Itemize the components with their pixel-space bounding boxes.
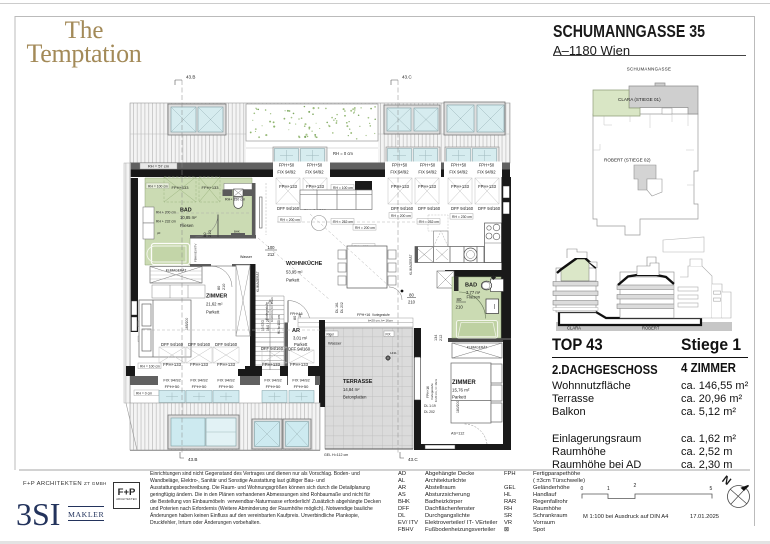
svg-text:43.C: 43.C <box>402 75 412 80</box>
svg-text:RH = 200 cm: RH = 200 cm <box>355 226 375 230</box>
svg-text:DFF 94/160: DFF 94/160 <box>478 206 501 211</box>
svg-text:DFF 94/160: DFF 94/160 <box>215 342 238 347</box>
svg-text:RH + 232 cm: RH + 232 cm <box>156 220 176 224</box>
svg-text:RH = 230 cm: RH = 230 cm <box>452 215 472 219</box>
svg-text:FPH+133: FPH+133 <box>201 185 219 190</box>
svg-text:FIX 94/92: FIX 94/92 <box>449 170 468 175</box>
svg-text:2: 2 <box>634 483 637 489</box>
svg-text:FIX 94/92: FIX 94/92 <box>277 170 296 175</box>
svg-text:FPH+133: FPH+133 <box>262 362 280 367</box>
svg-text:GEL H=112 cm: GEL H=112 cm <box>324 453 348 457</box>
svg-text:DFF 94/160: DFF 94/160 <box>277 206 300 211</box>
svg-text:RH = 200 cm: RH = 200 cm <box>391 214 411 218</box>
svg-text:RH = 0 cm: RH = 0 cm <box>136 392 152 396</box>
svg-text:Vorlegestufe: Vorlegestufe <box>265 302 269 320</box>
svg-text:Parkett: Parkett <box>206 310 220 315</box>
svg-text:0: 0 <box>581 486 584 492</box>
svg-text:AR: AR <box>292 328 300 334</box>
svg-text:b=20 cm, h= 16cm: b=20 cm, h= 16cm <box>368 319 393 323</box>
svg-text:Vorlegestufe: Vorlegestufe <box>372 313 390 317</box>
svg-text:DL 202: DL 202 <box>340 302 344 313</box>
svg-text:1431: 1431 <box>390 351 397 355</box>
svg-text:N: N <box>719 474 733 488</box>
svg-text:FBHV/EV/ITV: FBHV/EV/ITV <box>194 244 198 262</box>
svg-text:RH+ 350 cm: RH+ 350 cm <box>225 197 245 201</box>
svg-text:DL 161: DL 161 <box>335 302 339 313</box>
svg-text:ZIMMER: ZIMMER <box>452 380 476 386</box>
svg-text:p0: p0 <box>157 231 161 235</box>
svg-text:FIX: FIX <box>386 333 392 337</box>
svg-text:RH = 100 cm: RH = 100 cm <box>333 186 353 190</box>
svg-text:ROBERT (STIEGE 02): ROBERT (STIEGE 02) <box>604 158 651 163</box>
svg-text:210: 210 <box>207 230 212 237</box>
svg-text:FPH+50: FPH+50 <box>165 384 181 389</box>
svg-text:FPH+133: FPH+133 <box>391 184 409 189</box>
svg-text:1: 1 <box>607 486 610 492</box>
svg-text:RH = 100 cm: RH = 100 cm <box>148 185 168 189</box>
svg-text:14,84 m²: 14,84 m² <box>343 387 360 392</box>
svg-text:43.B: 43.B <box>188 457 197 462</box>
svg-text:FPH+50: FPH+50 <box>266 384 282 389</box>
svg-text:53,95 m²: 53,95 m² <box>286 270 303 275</box>
svg-text:FIX 94/92: FIX 94/92 <box>477 170 496 175</box>
svg-text:FIX 94/92: FIX 94/92 <box>390 170 409 175</box>
svg-text:FPH+133: FPH+133 <box>478 184 496 189</box>
svg-text:WOHNKÜCHE: WOHNKÜCHE <box>286 260 323 267</box>
svg-text:BAD: BAD <box>465 283 477 289</box>
svg-text:210: 210 <box>456 305 464 310</box>
svg-text:FPH+133: FPH+133 <box>171 185 189 190</box>
svg-text:KLIMAGERÄT: KLIMAGERÄT <box>256 271 260 292</box>
svg-text:b=20 cm, h= 16cm: b=20 cm, h= 16cm <box>434 378 438 402</box>
svg-text:134: 134 <box>434 335 438 341</box>
svg-text:FPH+50: FPH+50 <box>192 384 208 389</box>
svg-text:212: 212 <box>268 252 276 257</box>
svg-text:FIX 94/92: FIX 94/92 <box>264 378 282 383</box>
svg-text:3,01 m²: 3,01 m² <box>293 336 308 341</box>
svg-text:Parkett: Parkett <box>452 395 467 400</box>
svg-text:FPH+16: FPH+16 <box>290 312 303 316</box>
svg-text:FIX 94/92: FIX 94/92 <box>190 378 208 383</box>
svg-text:SCHUMANNGASSE: SCHUMANNGASSE <box>627 67 671 72</box>
svg-text:DFF 94/160: DFF 94/160 <box>451 206 474 211</box>
svg-text:FPH+133: FPH+133 <box>279 184 297 189</box>
svg-text:RH = 100 cm: RH = 100 cm <box>140 365 160 369</box>
svg-text:FIX 94/92: FIX 94/92 <box>418 170 437 175</box>
svg-text:FIX 94/92: FIX 94/92 <box>217 378 235 383</box>
svg-text:Wasser: Wasser <box>240 255 253 259</box>
svg-text:15,76 m²: 15,76 m² <box>452 388 470 393</box>
svg-text:FPH+50: FPH+50 <box>479 163 495 168</box>
svg-text:CLARA (STIEGE 01): CLARA (STIEGE 01) <box>618 97 661 102</box>
svg-text:Fliesen: Fliesen <box>467 295 481 300</box>
svg-text:AS=112: AS=112 <box>451 432 464 436</box>
svg-text:FIX 94/92: FIX 94/92 <box>163 378 181 383</box>
svg-text:210: 210 <box>222 284 226 290</box>
svg-text:FPH+50: FPH+50 <box>420 163 436 168</box>
svg-text:FPH+16: FPH+16 <box>357 313 370 317</box>
svg-text:RH + 200 cm: RH + 200 cm <box>156 211 176 215</box>
svg-text:FPH+50: FPH+50 <box>294 384 310 389</box>
svg-text:Betonplatten: Betonplatten <box>343 395 367 400</box>
svg-text:ZIMMER: ZIMMER <box>206 294 227 300</box>
svg-text:DFF 94/160: DFF 94/160 <box>288 347 311 352</box>
svg-text:FPH+50: FPH+50 <box>219 384 235 389</box>
svg-text:43.C: 43.C <box>408 457 418 462</box>
svg-text:FPH+133: FPH+133 <box>451 184 469 189</box>
svg-text:ROBERT: ROBERT <box>642 326 660 331</box>
svg-text:Rigel: Rigel <box>327 333 335 337</box>
svg-text:KLIMAGERÄT: KLIMAGERÄT <box>409 254 413 275</box>
svg-text:FPH+50: FPH+50 <box>279 163 295 168</box>
svg-text:180/200: 180/200 <box>456 401 460 413</box>
svg-text:212: 212 <box>439 335 443 341</box>
svg-text:FIX 94/92: FIX 94/92 <box>292 378 310 383</box>
svg-text:DFF 94/160: DFF 94/160 <box>261 346 284 351</box>
svg-text:FPH+50: FPH+50 <box>392 163 408 168</box>
svg-text:FPH+133: FPH+133 <box>290 362 308 367</box>
svg-text:Parkett: Parkett <box>286 278 300 283</box>
svg-text:10,85 m²: 10,85 m² <box>180 215 197 220</box>
svg-text:Wasser: Wasser <box>328 341 342 346</box>
svg-text:80: 80 <box>293 316 297 320</box>
svg-text:CLARA: CLARA <box>567 326 581 331</box>
svg-text:FPH+133: FPH+133 <box>217 362 235 367</box>
svg-text:FIX 94/92: FIX 94/92 <box>305 170 324 175</box>
svg-text:DL 1:19: DL 1:19 <box>424 404 436 408</box>
svg-text:FPH+50: FPH+50 <box>451 163 467 168</box>
svg-text:KLIMAGERÄT: KLIMAGERÄT <box>166 269 187 273</box>
svg-text:RH = 57 cm: RH = 57 cm <box>148 164 170 169</box>
svg-text:210: 210 <box>408 300 416 305</box>
svg-text:13 STG: 13 STG <box>261 319 265 331</box>
svg-text:165/200: 165/200 <box>185 318 189 330</box>
svg-text:b=20 cm, h= 16cm: b=20 cm, h= 16cm <box>270 297 274 322</box>
svg-text:21,62 m²: 21,62 m² <box>206 302 223 307</box>
svg-text:TERRASSE: TERRASSE <box>343 379 373 385</box>
svg-text:DFF 94/160: DFF 94/160 <box>188 342 211 347</box>
svg-text:DFF 94/160: DFF 94/160 <box>418 206 441 211</box>
svg-text:FPH+133: FPH+133 <box>306 184 324 189</box>
svg-text:RH = 200 cm: RH = 200 cm <box>280 218 300 222</box>
svg-text:FPH+133: FPH+133 <box>190 362 208 367</box>
svg-text:RH = 0 cm: RH = 0 cm <box>333 151 353 156</box>
svg-text:DFF 94/160: DFF 94/160 <box>391 206 414 211</box>
svg-text:43.B: 43.B <box>186 75 195 80</box>
svg-text:KLIMAGERÄT: KLIMAGERÄT <box>467 346 488 350</box>
svg-text:FPH+50: FPH+50 <box>307 163 323 168</box>
svg-text:80: 80 <box>457 297 462 302</box>
svg-text:DFF 94/160: DFF 94/160 <box>161 342 184 347</box>
svg-text:80: 80 <box>217 286 221 290</box>
svg-text:5: 5 <box>710 486 713 492</box>
svg-text:FPH+133: FPH+133 <box>418 184 436 189</box>
svg-text:80: 80 <box>409 293 414 298</box>
svg-text:FPH+133: FPH+133 <box>163 362 181 367</box>
svg-text:DL 202: DL 202 <box>424 410 435 414</box>
svg-text:HL h=100 cm: HL h=100 cm <box>277 315 281 334</box>
